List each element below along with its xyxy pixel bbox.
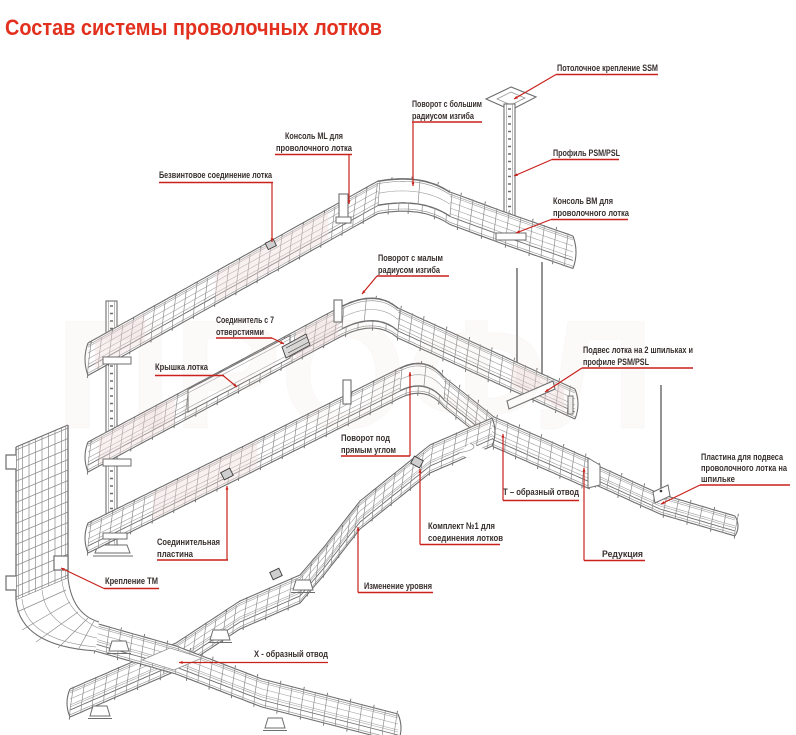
svg-text:Т – образный отвод: Т – образный отвод <box>503 487 579 498</box>
svg-text:отверстиями: отверстиями <box>216 327 264 338</box>
svg-text:Безвинтовое соединение лотка: Безвинтовое соединение лотка <box>159 170 272 181</box>
svg-text:Поворот под: Поворот под <box>341 433 390 444</box>
svg-text:проволочного лотка: проволочного лотка <box>276 143 353 154</box>
svg-text:Состав системы проволочных лот: Состав системы проволочных лотков <box>5 15 382 40</box>
svg-text:Пластина для подвеса: Пластина для подвеса <box>701 452 784 463</box>
svg-text:Крышка лотка: Крышка лотка <box>155 362 209 373</box>
svg-text:пластина: пластина <box>157 549 194 560</box>
svg-text:Потолочное крепление SSM: Потолочное крепление SSM <box>557 63 658 74</box>
svg-text:профиле PSM/PSL: профиле PSM/PSL <box>583 357 649 368</box>
svg-text:прямым углом: прямым углом <box>341 445 396 456</box>
svg-text:Подвес лотка на 2 шпильках и: Подвес лотка на 2 шпильках и <box>583 345 693 356</box>
svg-text:Крепление ТМ: Крепление ТМ <box>105 576 158 587</box>
svg-text:Консоль ML для: Консоль ML для <box>285 131 343 142</box>
svg-text:Консоль BM для: Консоль BM для <box>553 196 613 207</box>
svg-text:Соединительная: Соединительная <box>157 537 220 548</box>
svg-text:Редукция: Редукция <box>602 549 643 560</box>
svg-text:радиусом изгиба: радиусом изгиба <box>378 265 441 276</box>
svg-text:Комплект №1 для: Комплект №1 для <box>428 521 495 532</box>
svg-text:шпильке: шпильке <box>701 474 735 485</box>
svg-text:Поворот с большим: Поворот с большим <box>412 99 482 110</box>
svg-text:Изменение уровня: Изменение уровня <box>364 581 432 592</box>
svg-text:Поворот с малым: Поворот с малым <box>378 253 443 264</box>
svg-text:Профиль PSM/PSL: Профиль PSM/PSL <box>553 148 620 159</box>
svg-text:радиусом изгиба: радиусом изгиба <box>412 111 475 122</box>
svg-text:соединения лотков: соединения лотков <box>428 533 503 544</box>
svg-text:проволочного лотка на: проволочного лотка на <box>701 463 788 474</box>
svg-text:Соединитель с 7: Соединитель с 7 <box>216 315 274 326</box>
svg-text:Х - образный отвод: Х - образный отвод <box>254 649 328 660</box>
svg-text:проволочного лотка: проволочного лотка <box>553 208 630 219</box>
